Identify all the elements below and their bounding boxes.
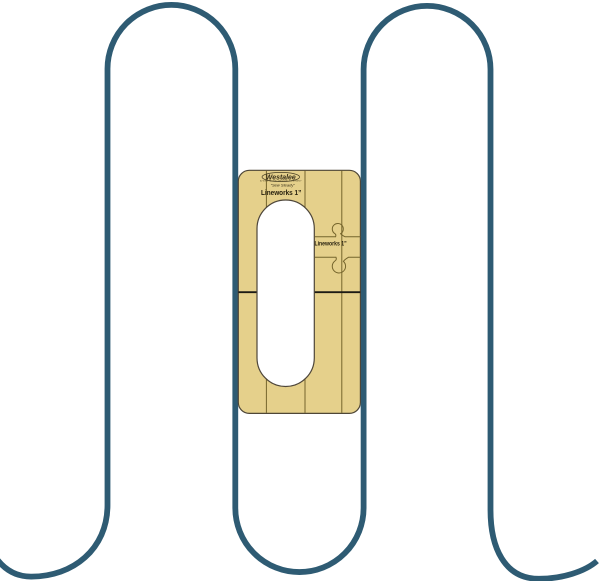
svg-text:Lineworks 1”: Lineworks 1”: [315, 241, 347, 248]
svg-text:Lineworks 1”: Lineworks 1”: [261, 190, 301, 197]
svg-text:“Sew Steady”: “Sew Steady”: [271, 183, 296, 188]
